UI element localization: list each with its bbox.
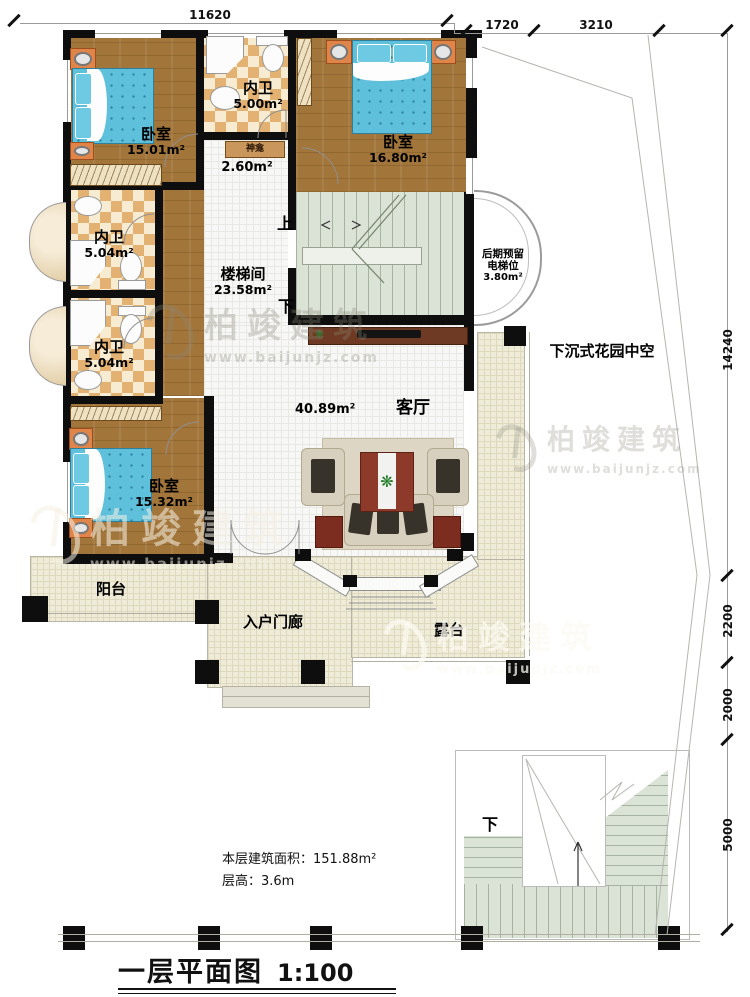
side-mat-right: [433, 516, 461, 548]
floor-terrace-strip: [477, 332, 525, 560]
sink: [74, 370, 102, 390]
porch-step-line: [223, 696, 369, 697]
tv-screen: [357, 330, 421, 338]
area-rug: ❋: [360, 452, 414, 512]
room-name: 卧室: [350, 134, 446, 151]
label-living-area: 40.89m²: [295, 403, 355, 417]
room-name: 卧室: [110, 126, 202, 143]
dim-label-1720: 1720: [480, 18, 524, 32]
column-terrace-top: [504, 326, 526, 346]
label-sunken-garden: 下沉式花园中空: [537, 343, 667, 360]
elevator-area: 3.80m²: [468, 272, 538, 283]
room-area: 16.80m²: [350, 151, 446, 165]
room-name: 下沉式花园中空: [537, 343, 667, 360]
column-porch-2: [195, 660, 219, 684]
terrace-edge-line: [529, 332, 530, 656]
watermark-2: 柏竣建筑 www.baijunjz.com: [497, 418, 702, 477]
tv-cabinet: ❋: [308, 327, 468, 345]
dim-label-14240: 14240: [721, 322, 735, 378]
armchair-left: [301, 448, 345, 506]
label-living-name: 客厅: [385, 400, 441, 417]
elevator-line2: 电梯位: [468, 260, 538, 272]
room-name: 阳台: [83, 581, 139, 598]
column-terrace-bottom: [506, 660, 530, 684]
dim-tick: [440, 14, 453, 27]
window-right-2: [466, 158, 477, 194]
rug-plant-icon: ❋: [378, 473, 396, 491]
window-top-3: [337, 30, 441, 38]
room-area: 23.58m²: [197, 283, 289, 297]
label-elevator-reserve: 后期预留 电梯位 3.80m²: [468, 248, 538, 283]
nightstand: [70, 48, 96, 70]
dim-tick: [527, 24, 540, 37]
column-base-3: [310, 926, 332, 950]
label-bath-top: 内卫 5.00m²: [222, 80, 294, 111]
dim-label-5000: 5000: [721, 813, 735, 857]
plan-title-text: 一层平面图: [118, 950, 263, 989]
room-name: 入户门廊: [218, 614, 328, 631]
nightstand: [70, 142, 94, 160]
room-name: 内卫: [73, 229, 145, 246]
floor-terrace: [351, 556, 525, 658]
column-base-5: [658, 926, 680, 950]
room-name: 内卫: [73, 339, 145, 356]
column-porch-1: [195, 600, 219, 624]
column-base-2: [198, 926, 220, 950]
nightstand: [430, 40, 456, 64]
outdoor-stair-landing: [522, 755, 606, 887]
room-area: 2.60m²: [215, 161, 279, 175]
label-outdoor-stair-down: 下: [482, 811, 498, 835]
label-balcony: 阳台: [83, 581, 139, 598]
wardrobe-bedroom-tr: [297, 38, 312, 106]
label-shrine-box: 神龛: [225, 141, 285, 158]
label-stair-up: 上: [277, 210, 293, 234]
plan-title-underline-2: [118, 993, 396, 994]
floor-height-text: 层高：3.6m: [222, 870, 294, 889]
nightstand: [326, 40, 352, 64]
sink: [74, 196, 102, 216]
column-base-4: [461, 926, 483, 950]
column-balcony-left: [22, 596, 48, 622]
watermark-brand: 柏竣建筑: [547, 423, 687, 456]
nightstand: [69, 518, 93, 538]
bay-semicircle-1: [29, 202, 66, 282]
column-porch-3: [301, 660, 325, 684]
room-name: 卧室: [118, 478, 210, 495]
wall-entry-left: [211, 553, 233, 563]
ground-line-2: [58, 941, 700, 942]
label-terrace: 露台: [421, 622, 477, 639]
label-stair-down: 下: [278, 293, 294, 317]
bay-post-1: [295, 549, 311, 561]
floor-area-text: 本层建筑面积：151.88m²: [222, 848, 376, 867]
pillow: [357, 44, 391, 63]
room-area: 5.04m²: [73, 246, 145, 260]
label-bedroom-top-right: 卧室 16.80m²: [350, 134, 446, 165]
dim-line-top-right: [454, 33, 728, 34]
outdoor-stair-bottom-run: [464, 884, 668, 938]
label-bedroom-top-left: 卧室 15.01m²: [110, 126, 202, 157]
wall-bath-top-bottom: [204, 132, 292, 140]
dim-line-right: [727, 33, 728, 932]
nightstand: [69, 428, 93, 450]
column-base-1: [63, 926, 85, 950]
label-bedroom-bottom-left: 卧室 15.32m²: [118, 478, 210, 509]
bay-post-2: [343, 575, 357, 587]
label-shrine-area: 2.60m²: [215, 161, 279, 175]
ground-line-1: [58, 934, 700, 935]
plan-scale-text: 1:100: [277, 959, 353, 987]
toilet-bowl: [262, 44, 284, 72]
wall-bath-divider: [63, 290, 155, 298]
dim-tick: [652, 24, 665, 37]
label-bath-mid: 内卫 5.04m²: [73, 229, 145, 260]
dim-line-top: [20, 23, 454, 24]
room-name: 内卫: [222, 80, 294, 97]
wardrobe-bedroom-tl: [70, 164, 162, 186]
cushion: [436, 459, 460, 493]
wall-bedroom-tr-left: [288, 30, 296, 192]
elevator-line1: 后期预留: [468, 248, 538, 260]
toilet-tank: [118, 280, 146, 290]
side-mat-left: [315, 516, 343, 548]
dim-label-3210: 3210: [572, 18, 620, 32]
bay-post-5: [461, 533, 474, 551]
pillow: [393, 44, 427, 63]
plant-icon: ❋: [315, 329, 327, 341]
room-name: 楼梯间: [197, 266, 289, 283]
label-bath-low: 内卫 5.04m²: [73, 339, 145, 370]
label-porch: 入户门廊: [218, 614, 328, 631]
dim-label-2000: 2000: [721, 683, 735, 727]
porch-steps: [222, 686, 370, 708]
wall-stairwell-bottom: [288, 315, 474, 325]
dim-label-2200: 2200: [721, 599, 735, 643]
bay-post-3: [424, 575, 438, 587]
room-area: 15.32m²: [118, 495, 210, 509]
bed-sheet-fold: [353, 63, 429, 81]
terrace-bottom-line: [351, 661, 530, 662]
wall-corridor-left: [155, 182, 163, 404]
plan-title: 一层平面图 1:100: [118, 950, 353, 989]
plan-title-underline-1: [118, 988, 396, 990]
balcony-rail-line: [30, 613, 207, 614]
window-top-1: [95, 30, 161, 38]
dim-tick: [7, 14, 20, 27]
wall-bath-low-bottom: [63, 396, 163, 404]
pillow: [73, 453, 90, 484]
window-right-1: [466, 58, 477, 88]
label-stair-hall: 楼梯间 23.58m²: [197, 266, 289, 297]
room-name: 客厅: [385, 400, 441, 417]
dim-label-11620: 11620: [180, 8, 240, 22]
wall-bedroom-tl-right: [196, 30, 204, 188]
room-area: 40.89m²: [295, 403, 355, 417]
shrine-name: 神龛: [246, 144, 264, 154]
room-area: 15.01m²: [110, 143, 202, 157]
room-area: 5.00m²: [222, 97, 294, 111]
pillow: [75, 73, 92, 105]
cushion: [311, 459, 335, 493]
room-area: 5.04m²: [73, 356, 145, 370]
room-name: 露台: [421, 622, 477, 639]
stair-handrail: [302, 247, 422, 265]
wardrobe-bedroom-bl: [70, 406, 162, 421]
bed-top-right: [352, 40, 432, 134]
bay-semicircle-2: [29, 306, 66, 386]
wall-house-bottom: [63, 554, 215, 564]
pillow: [73, 485, 90, 516]
floor-plan-canvas: ❋ ❋: [0, 0, 750, 997]
pillow: [75, 107, 92, 139]
watermark-url: www.baijunjz.com: [547, 462, 702, 476]
